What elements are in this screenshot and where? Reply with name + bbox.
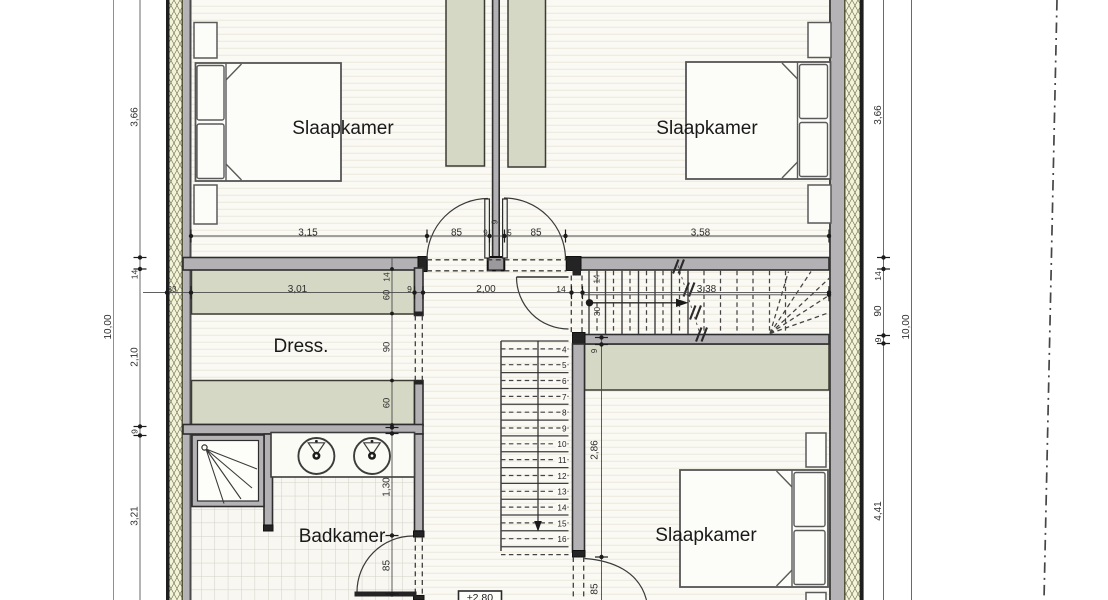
svg-text:15: 15 <box>557 519 567 528</box>
svg-text:33: 33 <box>168 285 177 294</box>
svg-text:14: 14 <box>557 504 567 513</box>
svg-text:13: 13 <box>557 488 567 497</box>
svg-text:85: 85 <box>530 227 542 238</box>
svg-text:9: 9 <box>407 284 412 294</box>
svg-text:14: 14 <box>873 271 883 281</box>
svg-text:2,00: 2,00 <box>476 284 496 295</box>
svg-text:2,86: 2,86 <box>590 440 601 460</box>
svg-text:10,00: 10,00 <box>901 314 912 339</box>
svg-text:85: 85 <box>590 583 601 595</box>
svg-text:5: 5 <box>507 228 512 237</box>
svg-text:3,15: 3,15 <box>298 227 318 238</box>
svg-text:±2,80: ±2,80 <box>467 592 493 600</box>
svg-text:14: 14 <box>382 272 392 282</box>
svg-text:Badkamer: Badkamer <box>299 526 386 547</box>
svg-text:4,41: 4,41 <box>873 501 884 521</box>
svg-text:9: 9 <box>491 219 500 224</box>
svg-text:10: 10 <box>557 440 567 449</box>
svg-text:4: 4 <box>562 345 567 354</box>
svg-text:3,01: 3,01 <box>288 284 308 295</box>
svg-text:14: 14 <box>593 274 602 283</box>
svg-text:85: 85 <box>451 227 463 238</box>
svg-text:10,00: 10,00 <box>103 314 114 339</box>
svg-text:Slaapkamer: Slaapkamer <box>655 525 757 546</box>
svg-text:9: 9 <box>873 337 883 342</box>
svg-text:16: 16 <box>557 535 567 544</box>
svg-text:3,58: 3,58 <box>691 227 711 238</box>
svg-text:12: 12 <box>557 472 567 481</box>
svg-text:85: 85 <box>382 560 393 572</box>
svg-text:Slaapkamer: Slaapkamer <box>292 118 394 139</box>
svg-text:9: 9 <box>130 429 140 434</box>
svg-text:1,30: 1,30 <box>382 477 393 497</box>
svg-text:11: 11 <box>558 456 567 465</box>
svg-text:9: 9 <box>483 228 488 237</box>
svg-text:90: 90 <box>382 342 393 353</box>
svg-text:14: 14 <box>556 284 566 294</box>
svg-text:6: 6 <box>562 377 567 386</box>
svg-text:3,66: 3,66 <box>130 107 141 127</box>
svg-text:14: 14 <box>130 270 140 280</box>
svg-text:60: 60 <box>382 290 393 301</box>
svg-text:90: 90 <box>873 305 884 317</box>
svg-text:2,10: 2,10 <box>130 347 141 367</box>
svg-text:3,21: 3,21 <box>130 506 141 526</box>
svg-text:9: 9 <box>562 424 567 433</box>
svg-text:8: 8 <box>562 409 567 418</box>
svg-text:30: 30 <box>593 307 602 317</box>
svg-text:Slaapkamer: Slaapkamer <box>656 118 758 139</box>
svg-text:5: 5 <box>562 361 567 370</box>
svg-text:7: 7 <box>562 393 567 402</box>
svg-text:3,38: 3,38 <box>697 284 717 295</box>
svg-text:3,66: 3,66 <box>873 105 884 125</box>
svg-text:60: 60 <box>382 398 393 409</box>
svg-text:9: 9 <box>590 349 599 353</box>
svg-text:Dress.: Dress. <box>274 336 329 357</box>
